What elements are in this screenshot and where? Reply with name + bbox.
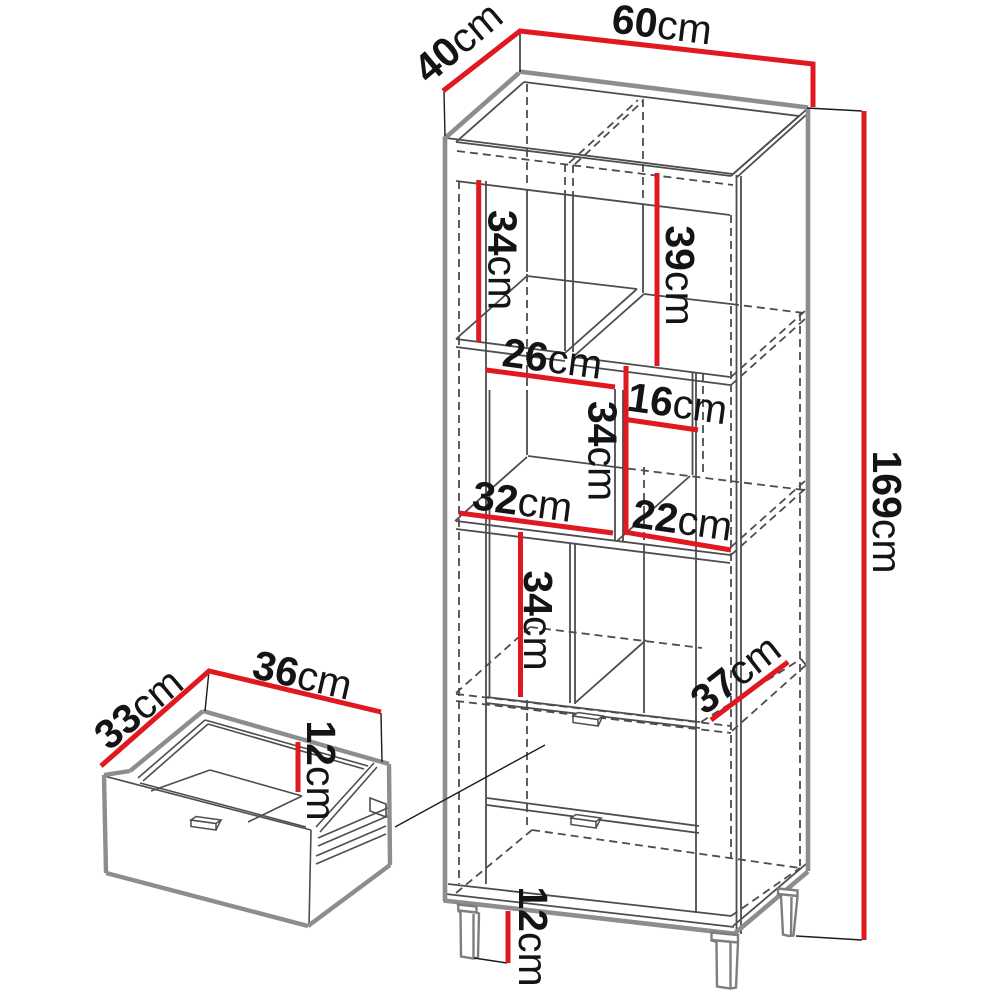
svg-text:34cm: 34cm [480, 210, 526, 310]
svg-text:12cm: 12cm [510, 886, 556, 986]
svg-text:169cm: 169cm [864, 450, 910, 573]
svg-text:34cm: 34cm [580, 401, 626, 501]
svg-text:39cm: 39cm [657, 225, 703, 325]
svg-text:34cm: 34cm [515, 570, 561, 670]
svg-text:12cm: 12cm [298, 720, 344, 820]
